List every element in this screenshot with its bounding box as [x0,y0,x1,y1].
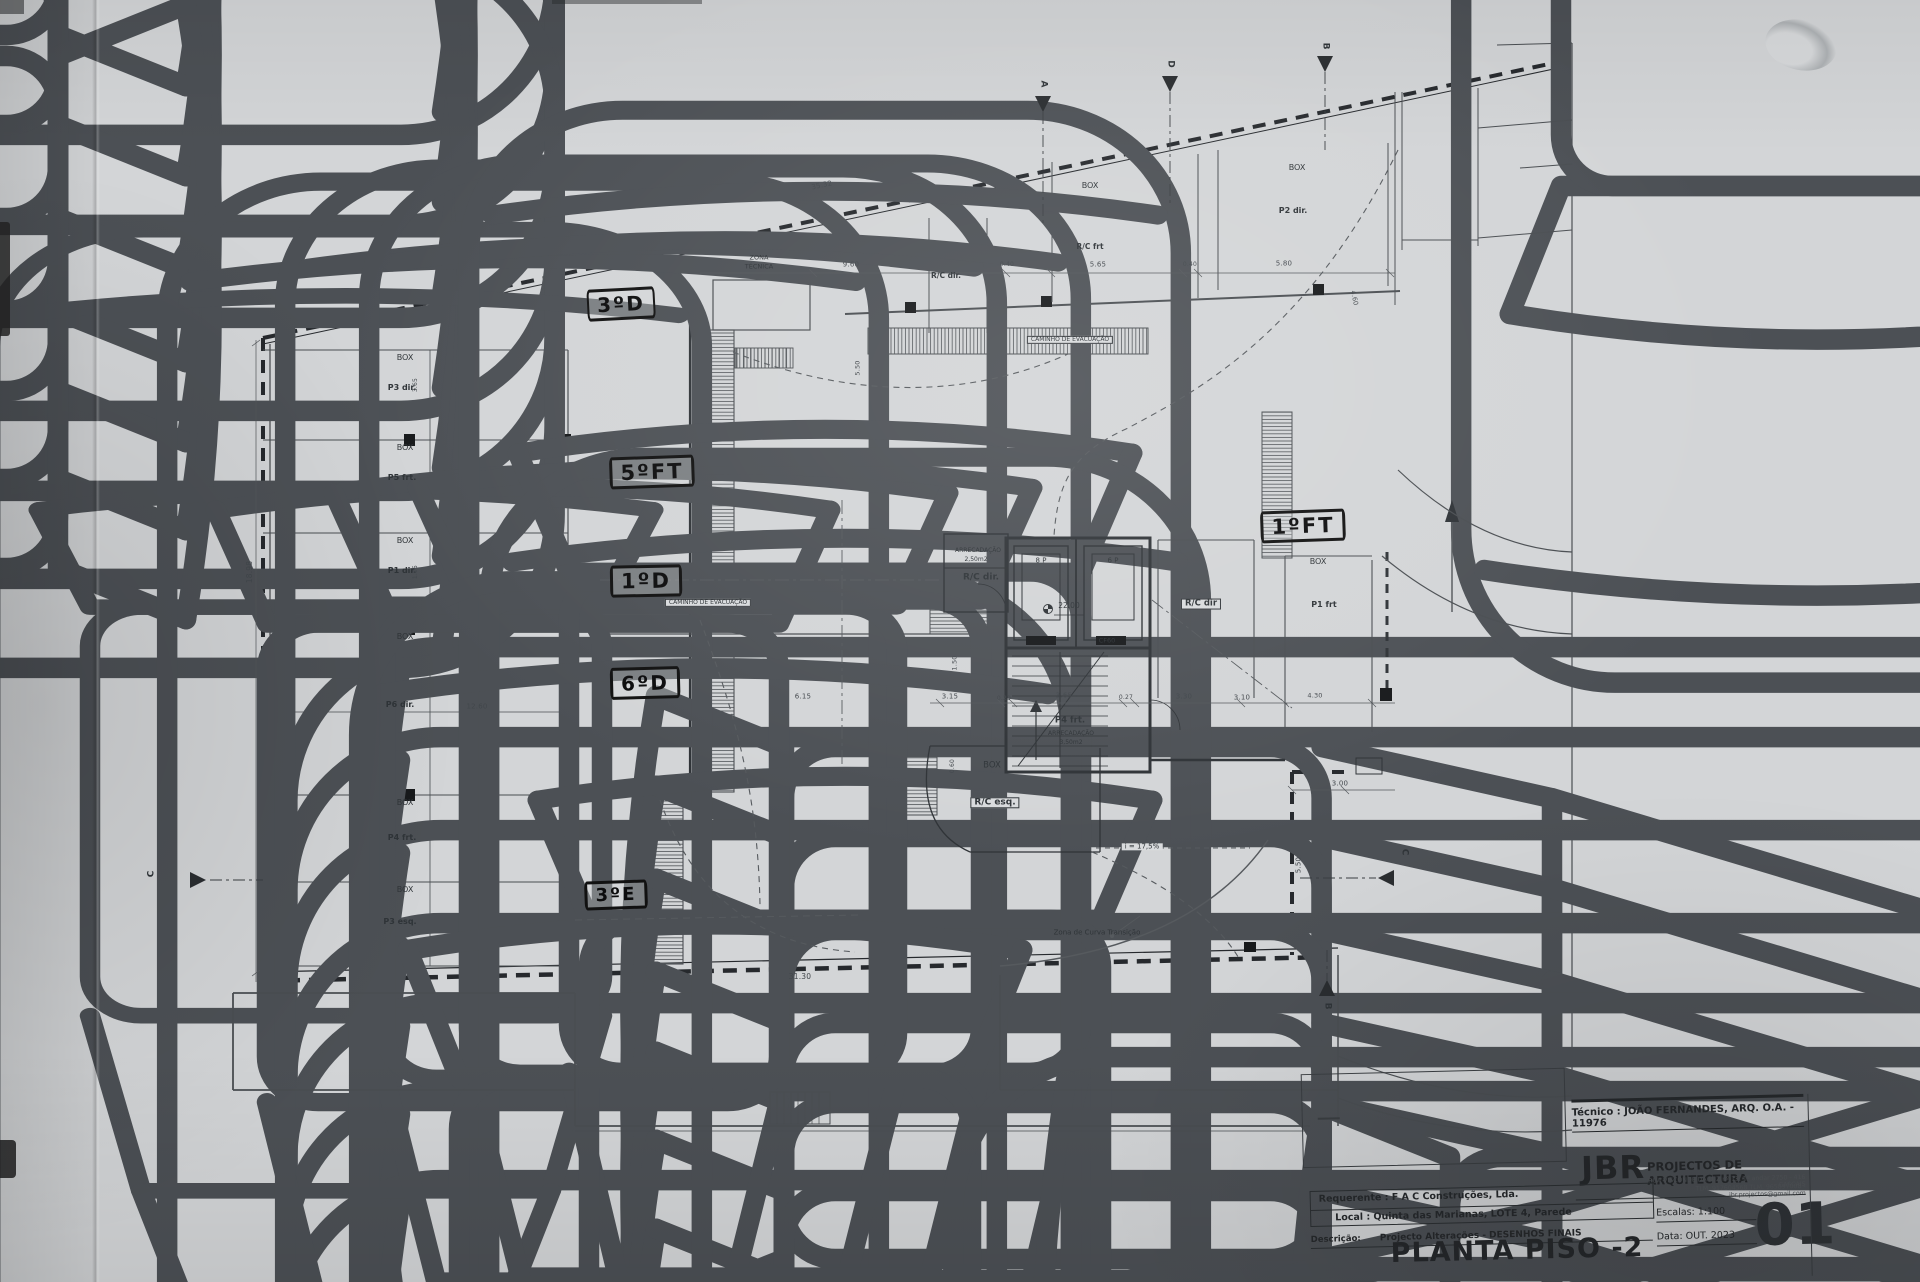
paper-fold-line [92,0,100,1282]
dim: 0.40 [1000,262,1014,268]
dim: 6.15 [795,693,811,700]
level-value: 22.00 [1058,602,1079,610]
section-marker-d: D [1165,60,1174,67]
ramp-slope-label: i = 17,5% [1122,843,1163,850]
paper-edge-mark [0,1140,16,1178]
stall-label-p2-dir: P2 dir. [1279,207,1308,215]
handwritten-unit-5ft: 5ºFT [609,455,695,490]
unit-label-rc-dir: R/C dir. [963,573,999,582]
handwritten-unit-1ft: 1ºFT [1260,509,1346,544]
section-marker-c-left: C [147,871,156,878]
elevator-8p-label: 8 P [1036,557,1047,564]
box-label: BOX [983,762,1001,771]
handwritten-unit-3e: 3ºE [584,879,648,910]
title-block: Técnico : JOÃO FERNANDES, ARQ. O.A. - 11… [1292,1044,1820,1282]
dim: 4.30 [1307,693,1322,700]
box-label: BOX [397,444,414,452]
dim: 5.65 [1090,261,1106,268]
dim: 3.00 [1332,780,1348,787]
box-label: BOX [397,537,414,545]
evacuation-path-label-top: CAMINHO DE EVACUAÇÃO [1027,336,1113,344]
dim: 5.50 [1295,857,1302,873]
box-label: BOX [397,354,414,362]
date-row: Data: OUT. 2023 [1657,1229,1757,1246]
firm-initials: JBR [1581,1148,1646,1188]
paper-left-shading [0,0,96,1282]
dim: 3.65 [1056,692,1072,699]
stall-label-p5-frt: P5 frt. [388,474,417,482]
storage-area-2: 3,50m2 [1059,740,1082,746]
box-label: BOX [397,799,414,807]
description-label: Descrição: [1311,1234,1361,1245]
section-marker-a: A [1038,81,1047,88]
stall-label-p6-dir: P6 dir. [386,701,415,709]
dim: 3.15 [942,693,958,700]
storage-area: 2,50m2 [964,557,987,563]
zona-tecnica-line2: TÉCNICA [745,264,773,271]
box-label: BOX [1310,558,1327,566]
stall-label-p4-frt: P4 frt. [388,834,417,842]
box-label: BOX [1082,182,1099,190]
handwritten-unit-3d: 3ºD [586,286,655,322]
elevator-6p-label: 6 P [1108,557,1119,564]
dim: 9.60 [843,261,859,268]
storage-label-2: ARRECADAÇÃO [1048,731,1094,737]
dim: 5.80 [1276,260,1292,267]
section-marker-c-right: C [1399,849,1408,856]
dim-left-height: 18.98 [246,561,254,583]
dim: 5.50 [855,360,862,375]
zona-tecnica-line1: ZONA [750,255,769,262]
box-label: BOX [1289,164,1306,172]
tecnico-row: Técnico : JOÃO FERNANDES, ARQ. O.A. - 11… [1571,1094,1804,1133]
sheet-number: 01 [1754,1189,1836,1259]
dim: 12.60 [466,703,487,710]
handwritten-unit-1d: 1ºD [610,564,682,597]
stall-label-rc-esq: R/C esq. [970,797,1019,808]
fire-door-label: CF60 [1099,638,1116,645]
box-label: BOX [397,886,414,894]
dim: 4.60 [1349,290,1359,306]
dim: 0.40 [1183,262,1197,268]
paper-top-mark [552,0,702,4]
paper-corner-mark [0,0,24,14]
stall-label-p3-esq: P3 esq. [383,918,416,926]
dim: 3.65 [413,378,419,392]
transition-curve-label: Zona de Curva Transição [1054,929,1141,936]
dim: 0.60 [950,759,956,773]
dim: 1.50 [952,655,959,670]
dim: 3.10 [1234,694,1250,701]
scale-row: Escalas: 1:100 [1656,1205,1756,1222]
dim-bottom-length: 31.30 [789,973,811,981]
storage-label: ARRECADAÇÃO [955,548,1001,554]
title-block-empty-box [1301,1068,1567,1168]
stall-label-rc-dir: R/C dir [1181,599,1221,610]
dim: 0.27 [1119,695,1133,701]
scanned-floor-plan-photo: { "document": { "sheet_number": "01", "t… [0,0,1920,1282]
unit-label-p4-frt: P4 frt. [1055,717,1085,726]
sheet-title: PLANTA PISO -2 [1385,1232,1650,1269]
dim: 1.05 [413,565,419,579]
evacuation-path-label-left: CAMINHO DE EVACUAÇÃO [665,599,751,607]
paper-edge-mark [0,222,10,336]
section-marker-b-bottom: B [1322,1003,1331,1010]
stall-label-p1-frt: P1 frt [1311,601,1336,609]
stall-label-rc-dir-top: R/C dir. [931,272,961,280]
handwritten-unit-6d: 6ºD [610,666,681,700]
dim: 3.30 [1176,693,1192,700]
box-label: BOX [397,633,414,641]
section-marker-b-top: B [1320,43,1329,50]
dim: 0.29 [997,696,1011,702]
stall-label-rc-frt: R/C frt [1076,243,1103,251]
